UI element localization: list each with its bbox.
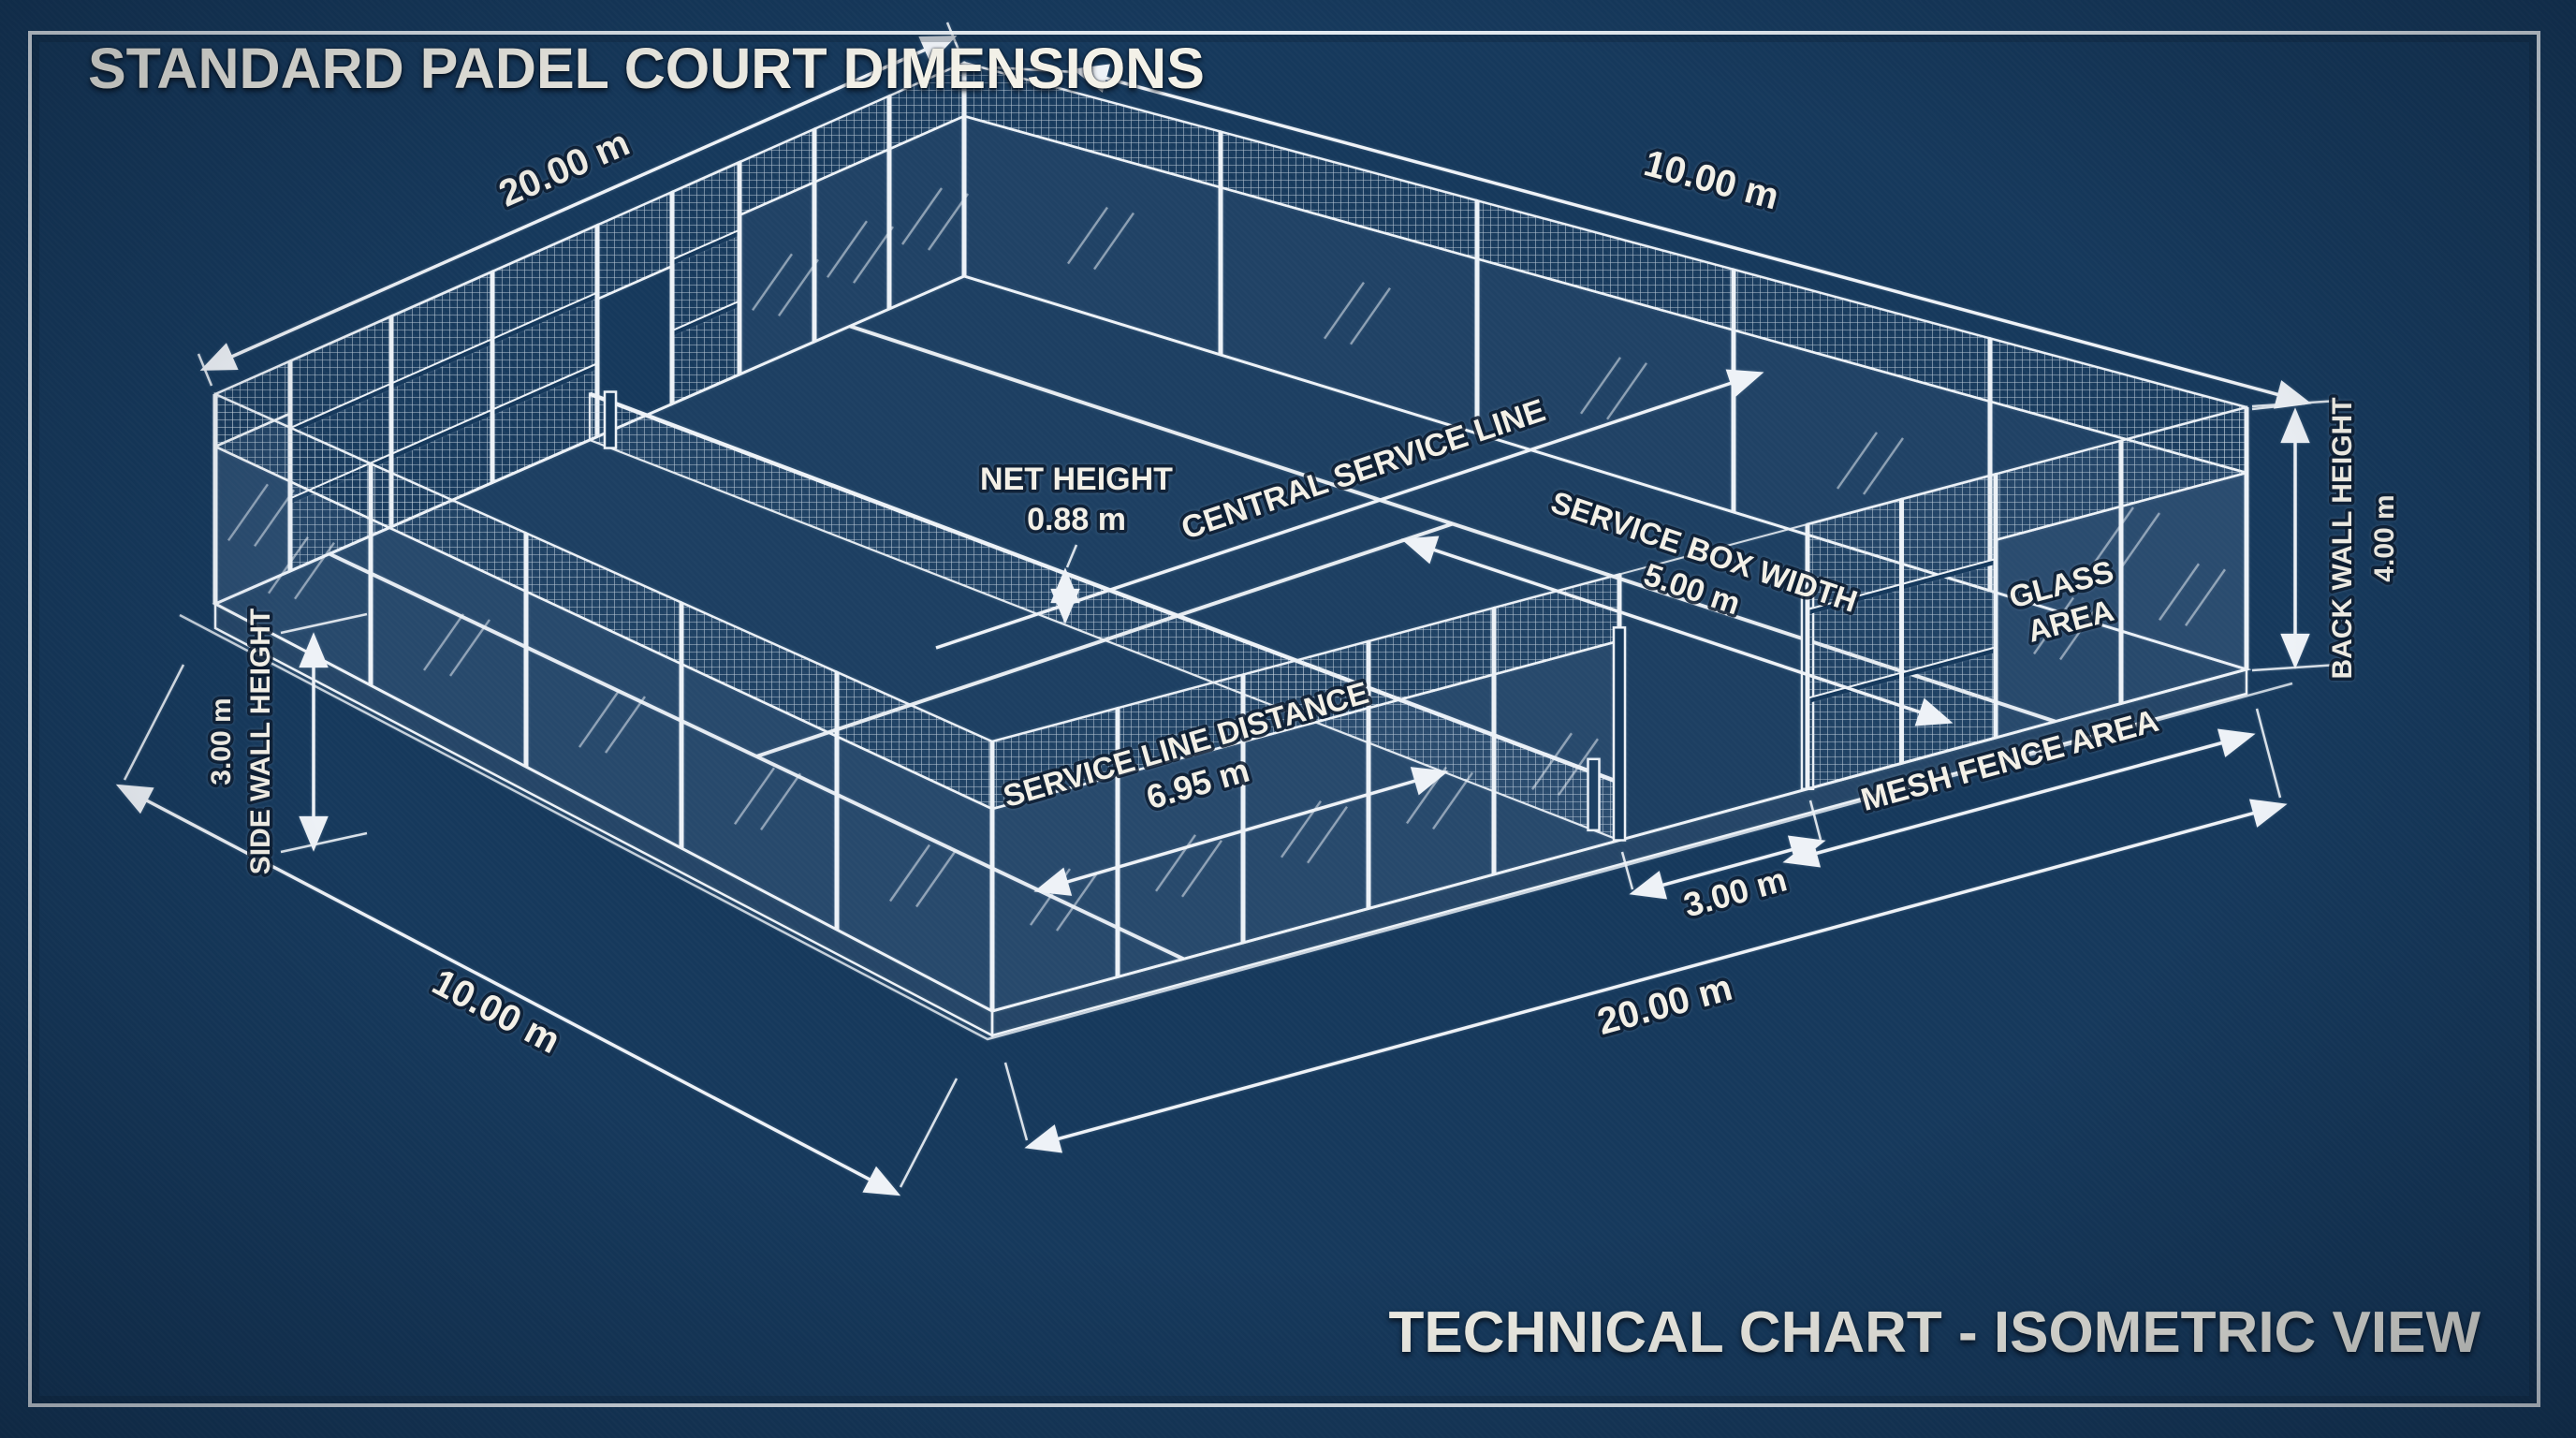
court-structure [180, 63, 2292, 1039]
dim-label-court-width-bottom: 10.00 m [426, 961, 566, 1062]
value-side-wall-height: 3.00 m [206, 697, 237, 785]
page-title: STANDARD PADEL COURT DIMENSIONS [88, 36, 1205, 101]
footer-title: TECHNICAL CHART - ISOMETRIC VIEW [1389, 1299, 2481, 1366]
dim-label-court-width-top: 10.00 m [1640, 142, 1783, 217]
value-back-wall-height: 4.00 m [2369, 494, 2400, 581]
label-side-wall-height: SIDE WALL HEIGHT [245, 609, 276, 874]
value-gate-opening-width: 3.00 m [1679, 859, 1791, 924]
blueprint-sheet: 20.00 m 10.00 m SERVICE BOX WIDTH 5.00 m… [0, 0, 2576, 1438]
value-net-height: 0.88 m [1027, 502, 1126, 537]
dim-label-court-length-top: 20.00 m [493, 123, 636, 215]
label-back-wall-height: BACK WALL HEIGHT [2327, 397, 2358, 679]
label-net-height: NET HEIGHT [980, 462, 1173, 497]
dim-label-court-length-bottom: 20.00 m [1593, 967, 1736, 1043]
padel-court-technical-drawing: 20.00 m 10.00 m SERVICE BOX WIDTH 5.00 m… [0, 0, 2576, 1438]
